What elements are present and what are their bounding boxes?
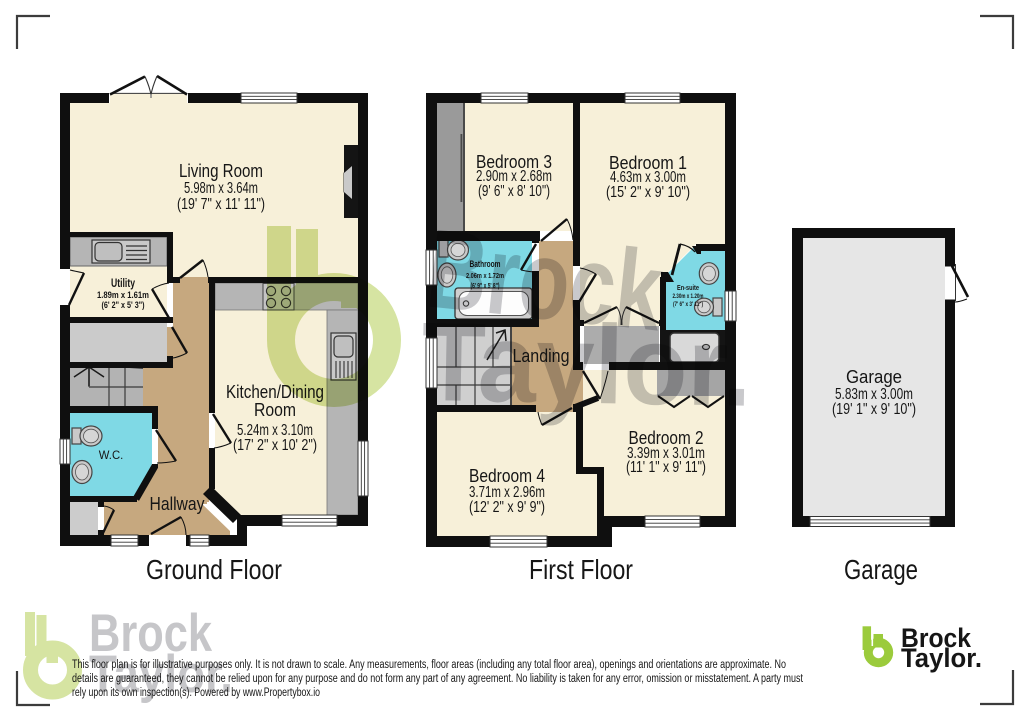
svg-text:W.C.: W.C. <box>99 450 124 462</box>
svg-text:Taylor.: Taylor. <box>901 643 982 673</box>
svg-text:Hallway: Hallway <box>150 494 205 514</box>
svg-text:details are guaranteed, they c: details are guaranteed, they cannot be r… <box>72 673 804 685</box>
svg-text:Utility: Utility <box>111 278 135 290</box>
svg-text:This floor plan is for illustr: This floor plan is for illustrative purp… <box>72 659 786 671</box>
svg-text:(19' 7" x 11' 11"): (19' 7" x 11' 11") <box>177 196 265 213</box>
svg-text:Room: Room <box>254 399 296 420</box>
svg-text:(11' 1" x 9' 11"): (11' 1" x 9' 11") <box>626 459 706 476</box>
svg-text:Garage: Garage <box>844 554 918 585</box>
svg-text:Bedroom 4: Bedroom 4 <box>469 465 545 486</box>
svg-text:2.30m x 1.20m: 2.30m x 1.20m <box>673 293 704 300</box>
svg-text:(17' 2" x 10' 2"): (17' 2" x 10' 2") <box>233 437 317 454</box>
svg-text:(9' 6" x 8' 10"): (9' 6" x 8' 10") <box>478 183 550 200</box>
svg-text:Living Room: Living Room <box>179 160 263 181</box>
svg-text:Ground Floor: Ground Floor <box>146 554 282 585</box>
svg-text:rely upon its own inspection(s: rely upon its own inspection(s). Powered… <box>72 687 320 699</box>
svg-text:(19' 1" x 9' 10"): (19' 1" x 9' 10") <box>832 401 916 418</box>
svg-text:Taylor.: Taylor. <box>421 299 753 430</box>
svg-text:Garage: Garage <box>846 366 902 387</box>
svg-text:5.98m x 3.64m: 5.98m x 3.64m <box>184 180 258 197</box>
svg-text:(6' 2" x 5' 3"): (6' 2" x 5' 3") <box>102 300 145 310</box>
svg-text:First Floor: First Floor <box>529 554 633 585</box>
svg-text:(15' 2" x 9' 10"): (15' 2" x 9' 10") <box>606 184 690 201</box>
svg-text:En-suite: En-suite <box>677 283 699 292</box>
svg-text:(12' 2" x 9' 9"): (12' 2" x 9' 9") <box>469 499 545 516</box>
